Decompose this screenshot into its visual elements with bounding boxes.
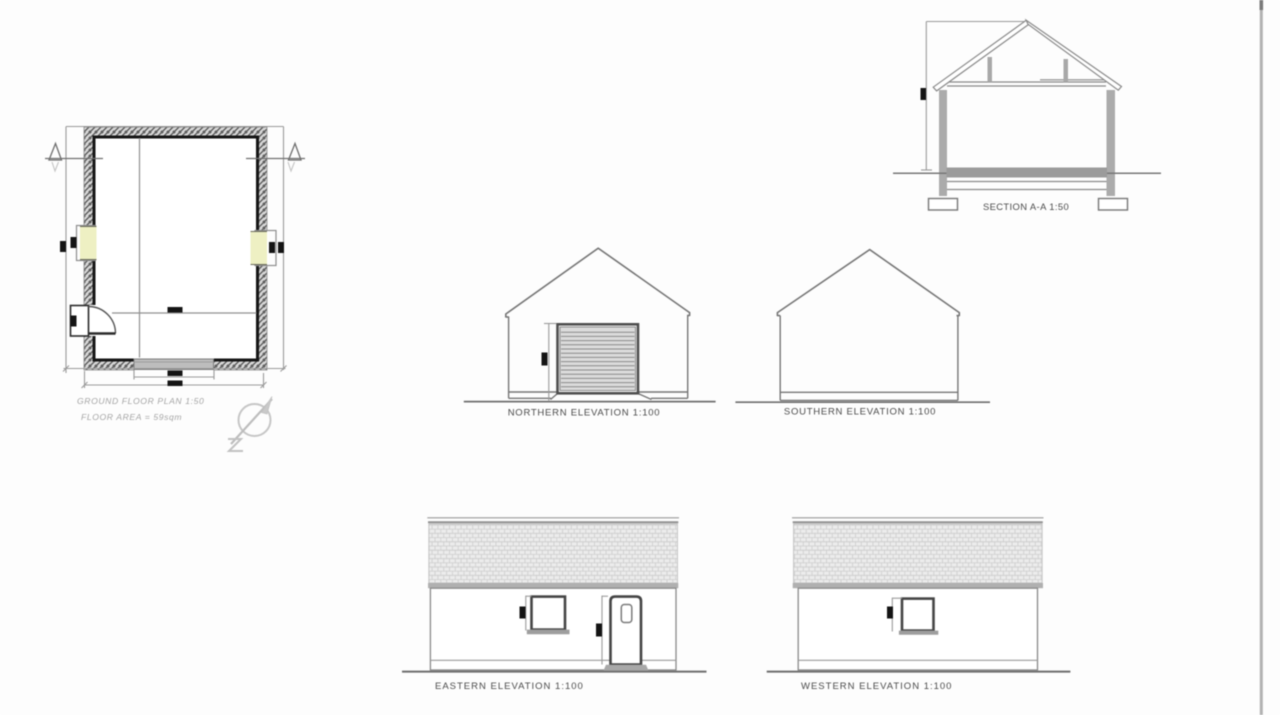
svg-text:GROUND FLOOR PLAN 1:50: GROUND FLOOR PLAN 1:50 (77, 396, 204, 406)
svg-text:WESTERN ELEVATION 1:100: WESTERN ELEVATION 1:100 (801, 681, 952, 692)
svg-text:EASTERN ELEVATION 1:100: EASTERN ELEVATION 1:100 (435, 681, 584, 692)
svg-text:FLOOR AREA = 59sqm: FLOOR AREA = 59sqm (81, 412, 182, 422)
svg-text:SOUTHERN ELEVATION 1:100: SOUTHERN ELEVATION 1:100 (784, 407, 936, 418)
svg-text:NORTHERN ELEVATION 1:100: NORTHERN ELEVATION 1:100 (508, 408, 661, 419)
svg-text:SECTION A-A 1:50: SECTION A-A 1:50 (983, 201, 1069, 212)
